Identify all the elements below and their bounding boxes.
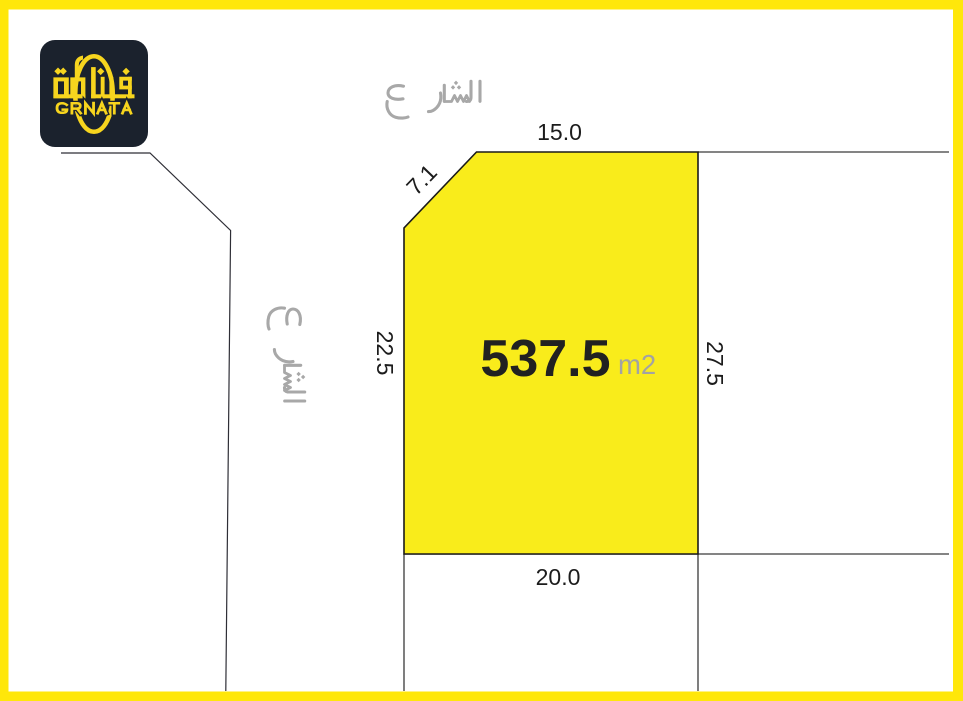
svg-text:20.0: 20.0 xyxy=(536,564,581,590)
svg-text:27.5: 27.5 xyxy=(702,341,728,386)
svg-text:m2: m2 xyxy=(618,349,656,380)
svg-text:15.0: 15.0 xyxy=(537,119,582,145)
svg-text:22.5: 22.5 xyxy=(372,331,398,376)
svg-text:537.5: 537.5 xyxy=(480,330,610,388)
